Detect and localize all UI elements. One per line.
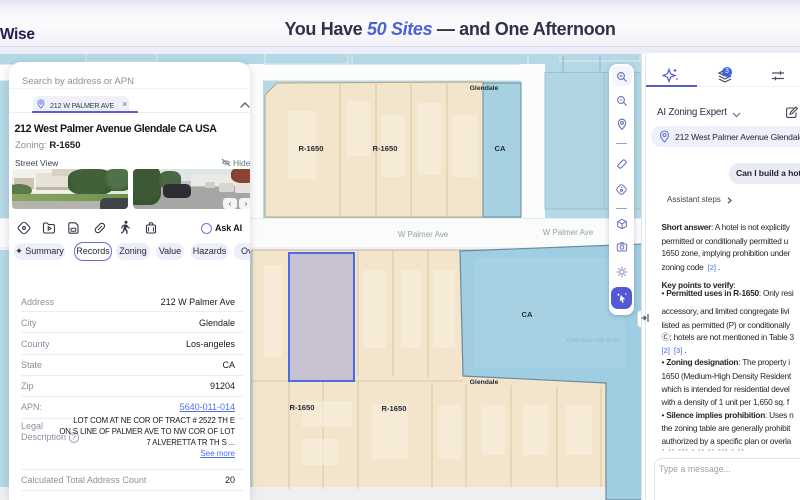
svg-text:R-1650: R-1650 xyxy=(299,144,324,153)
svg-text:CA: CA xyxy=(495,144,506,153)
svg-text:Glendale: Glendale xyxy=(470,85,499,92)
svg-text:Glendale: Glendale xyxy=(470,379,499,386)
svg-text:W Palmer Ave: W Palmer Ave xyxy=(543,228,594,237)
svg-text:R-1650: R-1650 xyxy=(373,144,398,153)
svg-text:R-1650: R-1650 xyxy=(290,403,315,412)
svg-text:Glendale city limits: Glendale city limits xyxy=(567,337,622,344)
svg-text:W Palmer Ave: W Palmer Ave xyxy=(398,230,449,239)
svg-text:R-1650: R-1650 xyxy=(382,404,407,413)
svg-text:CA: CA xyxy=(522,310,533,319)
